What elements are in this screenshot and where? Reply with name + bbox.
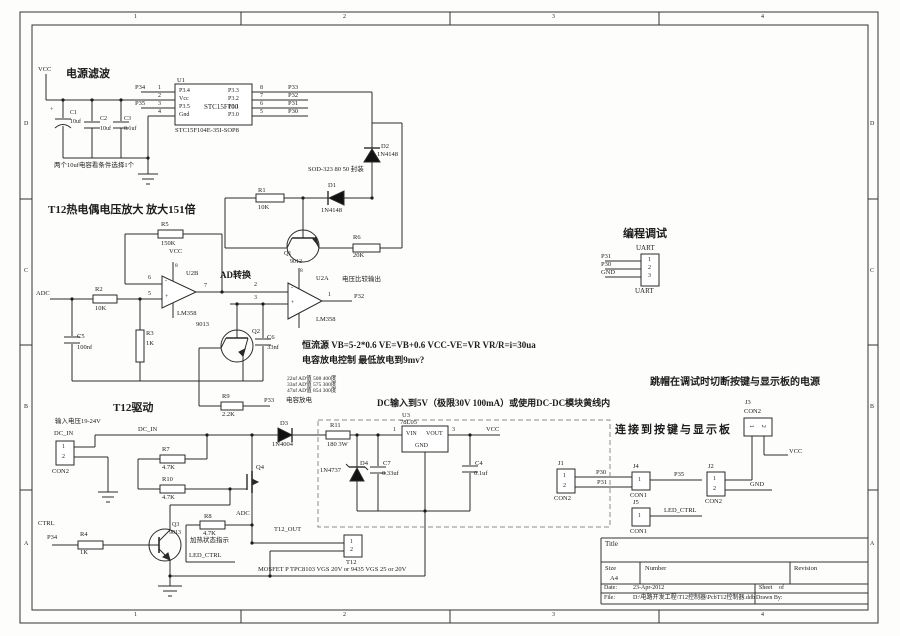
d1-ref: D1 xyxy=(328,182,336,189)
u1-pin3-name: P3.5 xyxy=(179,104,190,111)
c2-ref: C2 xyxy=(100,116,107,123)
u1-pin3-num: 3 xyxy=(158,101,161,108)
d1-value: 1N4148 xyxy=(321,207,342,214)
tb-drawn-by-label: Drawn By: xyxy=(756,595,783,602)
u2b-plus: + xyxy=(165,294,168,301)
adc-net-label: ADC xyxy=(36,290,50,297)
u3-pin1-num: 1 xyxy=(393,427,396,434)
r7-body xyxy=(160,455,185,463)
r11-ref: R11 xyxy=(330,422,341,429)
u2a-pin1-num: 1 xyxy=(328,292,331,299)
j1-ref: J1 xyxy=(558,460,564,467)
r1-body xyxy=(256,194,284,202)
uart-section-title: 编程调试 xyxy=(623,228,667,240)
j4-ref: J4 xyxy=(633,463,639,470)
dcin-type: CON2 xyxy=(52,468,69,475)
q1-ref: Q1 xyxy=(284,251,291,258)
u1-pin4-name: Gnd xyxy=(179,112,189,119)
j4-net-p35: P35 xyxy=(674,471,684,478)
j2-ref: J2 xyxy=(708,463,714,470)
net-p31: P31 xyxy=(288,100,298,107)
uart-pin1: 1 xyxy=(648,257,651,264)
dcin-connector xyxy=(56,441,74,465)
c4-ref: C4 xyxy=(475,460,483,467)
c6-value: 33nf xyxy=(267,344,279,351)
u3-vout-label: VOUT xyxy=(426,431,443,438)
d1-diode xyxy=(328,191,344,205)
tb-date-value: 23-Apr-2012 xyxy=(633,585,664,592)
vcc-net-label-3: VCC xyxy=(789,448,802,455)
d3-ref: D3 xyxy=(280,420,288,427)
d4-value: 1N4737 xyxy=(320,467,341,474)
frame-col-1-top: 1 xyxy=(134,14,137,21)
c5-ref: C5 xyxy=(77,333,85,340)
heat-status-note: 加热状态指示 xyxy=(190,537,229,544)
connect-note: 连接到按键与显示板 xyxy=(615,424,732,436)
j1-type: CON2 xyxy=(554,495,571,502)
d2-ref: D2 xyxy=(381,143,389,150)
uart-pin3: 3 xyxy=(648,273,651,280)
sod-package-note: SOD-323 80 50 封装 xyxy=(308,166,364,173)
r11-value: 180 3W xyxy=(327,441,348,448)
u2a-ref: U2A xyxy=(316,275,329,282)
u1-pin1-num: 1 xyxy=(158,85,161,92)
j3-type: CON2 xyxy=(744,408,761,415)
u2a-plus: + xyxy=(291,300,294,307)
u2b-minus: - xyxy=(165,278,167,285)
j1-net-p31: P31 xyxy=(597,479,607,486)
r3-ref: R3 xyxy=(146,330,154,337)
p34-net-label: P34 xyxy=(47,534,57,541)
u2b-ic-name: LM358 xyxy=(177,310,197,317)
t12out-connector xyxy=(344,535,362,557)
r10-body xyxy=(160,485,185,493)
d4-ref: D4 xyxy=(360,460,368,467)
ad-convert-label: AD转换 xyxy=(220,271,251,281)
discharge-ctrl-note: 电容放电控制 最低放电到9mv? xyxy=(302,356,424,366)
c3-ref: C3 xyxy=(124,116,131,123)
vcc-net-label: VCC xyxy=(38,66,51,73)
u2b-vcc-label: VCC xyxy=(169,248,182,255)
r8-body xyxy=(200,521,225,529)
u3-name: 78L05 xyxy=(400,419,417,426)
ctrl-net-label: CTRL xyxy=(38,520,55,527)
j1-pin2: 2 xyxy=(563,483,566,490)
tb-title-label: Title xyxy=(605,541,618,549)
j3-pin1: 1 xyxy=(747,425,754,428)
r11-body xyxy=(326,431,350,439)
u1-pin1-name: P3.4 xyxy=(179,88,190,95)
j5-type: CON1 xyxy=(630,528,647,535)
j1-net-p30: P30 xyxy=(596,469,606,476)
j5-ref: J5 xyxy=(633,499,639,506)
uart-label-top: UART xyxy=(636,245,655,253)
frame-row-b-left: B xyxy=(24,404,28,411)
tb-sheet-label: Sheet xyxy=(759,585,772,592)
frame-row-a-left: A xyxy=(24,541,28,548)
u3-vin-label: VIN xyxy=(406,431,417,438)
r9-body xyxy=(221,402,243,410)
r2-ref: R2 xyxy=(95,286,103,293)
u2a-pin2-num: 2 xyxy=(254,282,257,289)
j5-net-led-ctrl: LED_CTRL xyxy=(664,507,697,514)
adc-net-label-2: ADC xyxy=(236,510,250,517)
r9-value: 2.2K xyxy=(222,411,235,418)
t12out-pin2: 2 xyxy=(350,547,353,554)
u1-pin4-num: 4 xyxy=(158,109,161,116)
tb-file-label: File: xyxy=(604,595,615,602)
u1-pin8-num: 8 xyxy=(260,85,263,92)
tb-size-value: A4 xyxy=(610,575,618,582)
u2b-ref: U2B xyxy=(186,270,198,277)
uart-label-bottom: UART xyxy=(635,288,654,296)
u1-pin8-name: P3.3 xyxy=(228,88,239,95)
discharge-label: 电容放电 xyxy=(286,397,312,404)
u1-package: STC15F104E-35I-SOP8 xyxy=(175,127,239,134)
net-p32: P32 xyxy=(288,92,298,99)
r2-body xyxy=(93,295,117,303)
u2a-pin3-num: 3 xyxy=(254,295,257,302)
c7-ref: C7 xyxy=(383,460,391,467)
j2-connector xyxy=(707,472,725,496)
tb-date-label: Date: xyxy=(604,585,617,592)
j2-net-gnd: GND xyxy=(750,481,764,488)
frame-col-3-top: 3 xyxy=(552,14,555,21)
net-p30: P30 xyxy=(288,108,298,115)
t12out-pin1: 1 xyxy=(350,539,353,546)
c7-value: 0.33uf xyxy=(382,470,399,477)
uart-net-p31: P31 xyxy=(601,253,611,260)
net-p34: P34 xyxy=(135,84,145,91)
r6-body xyxy=(353,244,380,252)
q2-value: 9013 xyxy=(196,321,209,328)
schematic-canvas xyxy=(0,0,900,636)
q1-transistor xyxy=(287,230,319,262)
dcin-connector-label: DC_IN xyxy=(54,430,73,437)
net-p35: P35 xyxy=(135,100,145,107)
frame-col-4-bottom: 4 xyxy=(761,612,764,619)
u2b-opamp xyxy=(162,276,196,308)
u3-gnd-label: GND xyxy=(415,443,428,450)
u1-pin2-name: Vcc xyxy=(179,96,189,103)
q4-ref: Q4 xyxy=(256,464,264,471)
r2-value: 10K xyxy=(95,305,106,312)
r9-ref: R9 xyxy=(222,393,230,400)
mosfet-note: MOSFET P TPC8103 VGS 20V or 9435 VGS 25 … xyxy=(258,566,406,573)
frame-row-c-left: C xyxy=(24,268,28,275)
frame-row-a-right: A xyxy=(870,541,874,548)
dcin-pin1: 1 xyxy=(62,444,65,451)
components-layer xyxy=(56,84,772,578)
r5-body xyxy=(158,230,183,238)
r8-ref: R8 xyxy=(204,513,212,520)
frame-row-d-left: D xyxy=(24,121,28,128)
j1-pin1: 1 xyxy=(563,473,566,480)
r4-value: 1K xyxy=(80,549,88,556)
j4-pin1: 1 xyxy=(638,477,641,484)
r10-ref: R10 xyxy=(162,476,173,483)
q3-value: 9013 xyxy=(169,530,181,537)
frame-row-c-right: C xyxy=(870,268,874,275)
frame-col-2-top: 2 xyxy=(343,14,346,21)
net-p33: P33 xyxy=(288,84,298,91)
d3-diode xyxy=(278,428,292,442)
drive-section-title: T12驱动 xyxy=(113,402,153,414)
r7-ref: R7 xyxy=(162,446,170,453)
r5-ref: R5 xyxy=(161,221,169,228)
sheet-frame xyxy=(20,12,878,623)
j2-pin2: 2 xyxy=(713,486,716,493)
r6-ref: R6 xyxy=(353,234,361,241)
r3-body xyxy=(136,330,144,362)
j2-pin1: 1 xyxy=(713,476,716,483)
j1-connector xyxy=(557,469,575,493)
u3-pin3-num: 3 xyxy=(452,427,455,434)
d2-value: 1N4148 xyxy=(377,151,398,158)
frame-col-3-bottom: 3 xyxy=(552,612,555,619)
j5-connector xyxy=(632,508,650,526)
p32-net-label: P32 xyxy=(354,293,364,300)
frame-col-2-bottom: 2 xyxy=(343,612,346,619)
j4-connector xyxy=(632,472,650,490)
r4-body xyxy=(78,541,103,549)
frame-row-b-right: B xyxy=(870,404,874,411)
u2b-pin8-num: 8 xyxy=(175,263,178,269)
u2a-minus: - xyxy=(291,285,293,292)
uart-net-gnd: GND xyxy=(601,269,615,276)
c3-value: 0.1uf xyxy=(124,126,137,133)
u2a-ic-name: LM358 xyxy=(316,316,336,323)
q2-transistor xyxy=(221,330,253,362)
j2-type: CON2 xyxy=(705,498,722,505)
r5-value: 150K xyxy=(161,240,175,247)
c4-value: 0.1uf xyxy=(474,470,488,477)
dcin-net-label: DC_IN xyxy=(138,426,157,433)
c2-value: 10uf xyxy=(100,126,111,133)
r6-value: 20K xyxy=(353,252,364,259)
cc-source-note: 恒流源 VB=5-2*0.6 VE=VB+0.6 VCC-VE=VR VR/R=… xyxy=(302,341,536,351)
u1-pin5-name: P3.0 xyxy=(228,112,239,119)
u1-pin6-num: 6 xyxy=(260,101,263,108)
schematic-sheet: 1 2 3 4 1 2 3 4 D C B A D C B A VCC 电源滤波… xyxy=(0,0,900,636)
d3-value: 1N4004 xyxy=(272,441,293,448)
p33-net-label: P33 xyxy=(264,397,274,404)
j5-pin1: 1 xyxy=(638,513,641,520)
u1-pin5-num: 5 xyxy=(260,109,263,116)
vcc-net-label-2: VCC xyxy=(486,426,499,433)
tb-number-label: Number xyxy=(645,565,666,572)
amp-section-title: T12热电偶电压放大 放大151倍 xyxy=(48,204,196,216)
q3-ref: Q3 xyxy=(172,522,179,529)
c6-ref: C6 xyxy=(267,334,275,341)
cap-choice-note: 两个10uf电容看条件选择1个 xyxy=(54,162,134,169)
c5-value: 100nf xyxy=(77,344,92,351)
ad-note-3: 47nf AD值 854 300度 xyxy=(287,388,336,394)
dc-input-note: DC输入到5V（极限30V 100mA）或使用DC-DC模块黄线内 xyxy=(377,399,610,409)
input-voltage-note: 输入电压19-24V xyxy=(55,418,101,425)
u1-ref: U1 xyxy=(177,77,185,84)
dcin-pin2: 2 xyxy=(62,454,65,461)
u2a-pin8-num: 8 xyxy=(300,268,303,274)
j3-pin2: 2 xyxy=(759,425,766,428)
frame-col-4-top: 4 xyxy=(761,14,764,21)
r1-ref: R1 xyxy=(258,187,266,194)
frame-row-d-right: D xyxy=(870,121,874,128)
q2-ref: Q2 xyxy=(252,328,260,335)
uart-pin2: 2 xyxy=(648,265,651,272)
wires-layer xyxy=(46,74,788,596)
u2b-pin6-num: 6 xyxy=(148,275,151,282)
q1-value: 9012 xyxy=(290,259,302,266)
compare-out-label: 电压比较输出 xyxy=(342,276,381,283)
r4-ref: R4 xyxy=(80,531,88,538)
tb-size-label: Size xyxy=(605,565,616,572)
led-ctrl-net-label: LED_CTRL xyxy=(189,552,222,559)
t12out-net-label: T12_OUT xyxy=(274,526,301,533)
uart-net-p30: P30 xyxy=(601,261,611,268)
u1-pin7-num: 7 xyxy=(260,93,263,100)
u2b-pin5-num: 5 xyxy=(148,291,151,298)
c1-polarity: + xyxy=(50,107,53,114)
frame-col-1-bottom: 1 xyxy=(134,612,137,619)
r1-value: 10K xyxy=(258,204,269,211)
tb-file-value: D:\电路开发工程\T12控制器\PcbT12控制器.ddb xyxy=(633,595,755,602)
r3-value: 1K xyxy=(146,340,154,347)
jumper-note: 跳帽在调试时切断按键与显示板的电源 xyxy=(650,377,820,388)
r7-value: 4.7K xyxy=(162,464,175,471)
r10-value: 4.7K xyxy=(162,494,175,501)
u1-pin7-name: P3.2 xyxy=(228,96,239,103)
power-section-title: 电源滤波 xyxy=(66,68,110,80)
u2b-pin7-num: 7 xyxy=(204,283,207,290)
j3-ref: J3 xyxy=(745,399,751,406)
tb-of-label: of xyxy=(779,585,784,592)
u1-pin6-name: P3.1 xyxy=(228,104,239,111)
tb-revision-label: Revision xyxy=(794,565,817,572)
u1-pin2-num: 2 xyxy=(158,93,161,100)
c1-value: 10uf xyxy=(70,119,81,126)
c1-ref: C1 xyxy=(70,110,77,117)
